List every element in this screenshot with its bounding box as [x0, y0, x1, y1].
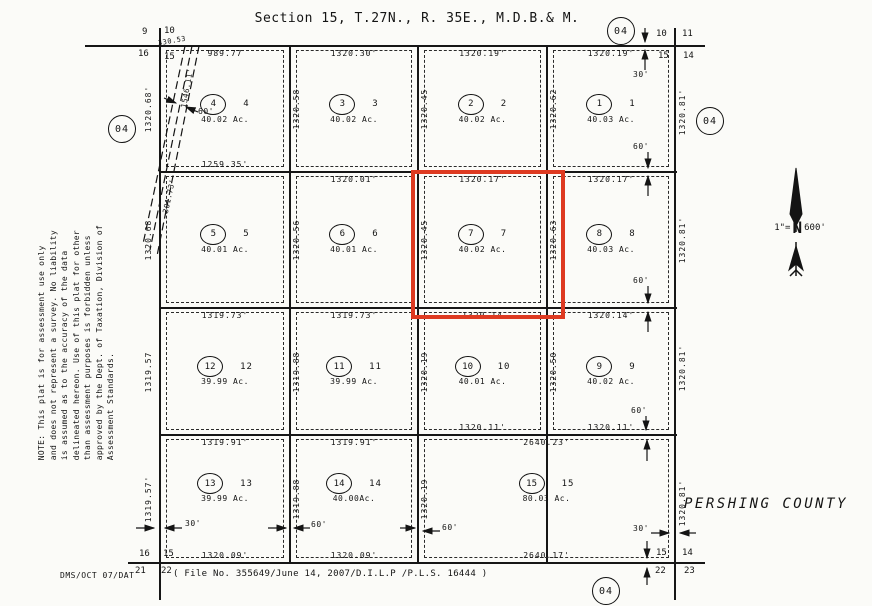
- measure-left: 1320.68: [144, 220, 153, 261]
- note-line: is assumed as to the accuracy of the dat…: [59, 182, 71, 460]
- parcel-acreage: 40.01 Ac.: [290, 245, 418, 254]
- parcel-number: 2: [501, 99, 507, 109]
- measure-top: 1319.91': [331, 438, 378, 447]
- measure-top: 1320.17': [459, 175, 506, 184]
- corner-br-sec14: 14: [682, 548, 693, 558]
- drafter-date-stamp: DMS/OCT 07/DAT: [60, 571, 134, 580]
- width-label-60-parcel-8: 60': [633, 276, 649, 285]
- corner-tl-sec15: 15: [164, 52, 175, 62]
- page-ref-circle-right[interactable]: 04: [696, 107, 724, 135]
- measure-top: 1319.91': [202, 438, 249, 447]
- corner-bl-sec22: 22: [161, 566, 172, 576]
- parcel-number: 9: [629, 362, 635, 372]
- width-label-60-parcel-13-14: 60': [311, 520, 327, 529]
- file-number-note: ( File No. 355649/June 14, 2007/D.I.L.P …: [173, 569, 488, 579]
- scale-value: 600': [804, 223, 826, 233]
- parcel-number-circled: 9: [586, 356, 612, 377]
- parcel-number-circled: 12: [197, 356, 223, 377]
- measure-right-parcel-1: 1320.81': [678, 89, 687, 136]
- measure-top: 1320.17': [588, 175, 635, 184]
- parcel-number-circled: 7: [458, 224, 484, 245]
- corner-tl-sec16: 16: [138, 49, 149, 59]
- parcel-number-circled: 2: [458, 94, 484, 115]
- corner-tr-sec11: 11: [682, 29, 693, 39]
- parcel-13[interactable]: 1319.91' 1319.57' 1313 39.99 Ac. 1320.09…: [160, 435, 290, 563]
- parcel-acreage: 40.00Ac.: [290, 494, 418, 503]
- parcel-2[interactable]: 1320.19' 1320.45 22 40.02 Ac.: [418, 46, 547, 172]
- note-line: than assessment purposes is forbidden un…: [82, 182, 94, 460]
- measure-bottom: 1320.09': [202, 551, 249, 560]
- corner-tl-sec10: 10: [164, 26, 175, 36]
- parcel-number-circled: 1: [586, 94, 612, 115]
- measure-top: 1320.01': [331, 175, 378, 184]
- parcel-number-circled: 10: [455, 356, 481, 377]
- parcel-14[interactable]: 1319.91' 1319.88 1414 40.00Ac. 1320.09': [290, 435, 418, 563]
- corner-bl-sec16: 16: [139, 549, 150, 559]
- measure-top: 1320.19': [588, 49, 635, 58]
- parcel-6[interactable]: 1320.01' 1320.56 66 40.01 Ac.: [290, 172, 418, 308]
- measure-right-parcel-9: 1320.81': [678, 345, 687, 392]
- measure-top: 1320.14': [588, 311, 635, 320]
- parcel-1[interactable]: 1320.19' 1320.62 11 40.03 Ac.: [547, 46, 675, 172]
- measure-top: 989.77: [208, 49, 243, 58]
- parcel-number-circled: 3: [329, 94, 355, 115]
- width-label-30-bottom-left: 30': [185, 519, 201, 528]
- parcel-8[interactable]: 1320.17' 1320.63 88 40.03 Ac.: [547, 172, 675, 308]
- parcel-7-selected[interactable]: 1320.17' 1320.45 77 40.02 Ac.: [418, 172, 547, 308]
- parcel-12[interactable]: 1319.73' 1319.57 1212 39.99 Ac.: [160, 308, 290, 435]
- note-line: approved by the Dept. of Taxation, Divis…: [93, 182, 105, 460]
- measure-bottom: 1320.11': [459, 423, 506, 432]
- measure-top: 1320.30': [331, 49, 378, 58]
- parcel-acreage: 40.03 Ac.: [547, 115, 675, 124]
- parcel-acreage: 39.99 Ac.: [160, 494, 290, 503]
- parcel-acreage: 39.99 Ac.: [290, 377, 418, 386]
- corner-br-sec23: 23: [684, 566, 695, 576]
- parcel-number-circled: 13: [197, 473, 223, 494]
- width-label-60-parcel-9: 60': [631, 406, 647, 415]
- measure-right-parcel-8: 1320.81': [678, 217, 687, 264]
- parcel-number-circled: 15: [519, 473, 545, 494]
- measure-bottom: 2640.17': [523, 551, 570, 560]
- parcel-number: 3: [372, 99, 378, 109]
- note-line: NOTE: This plat is for assessment use on…: [36, 182, 48, 460]
- parcel-number: 12: [240, 362, 253, 372]
- parcel-number-circled: 14: [326, 473, 352, 494]
- parcel-number: 15: [562, 479, 575, 489]
- parcel-3[interactable]: 1320.30' 1320.58 33 40.02 Ac.: [290, 46, 418, 172]
- note-line: and does not represent a survey. No liab…: [47, 182, 59, 460]
- parcel-number-circled: 8: [586, 224, 612, 245]
- corner-bl-sec15: 15: [163, 549, 174, 559]
- parcel-acreage: 40.03 Ac.: [547, 245, 675, 254]
- parcel-acreage: 40.02 Ac.: [418, 245, 547, 254]
- measure-bottom: 1259.35': [202, 160, 249, 169]
- corner-br-sec22: 22: [655, 566, 666, 576]
- parcel-10[interactable]: 1320.14 1320.19 1010 40.01 Ac. 1320.11': [418, 308, 547, 435]
- parcel-acreage: 40.02 Ac.: [290, 115, 418, 124]
- parcel-15[interactable]: 2640.23' 1320.19 1515 80.03 Ac. 2640.17': [418, 435, 675, 563]
- measure-left: 1319.57: [144, 351, 153, 392]
- county-label: PERSHING COUNTY: [684, 496, 848, 512]
- parcel-number: 5: [243, 229, 249, 239]
- width-label-60-road-parcel-4: 60': [198, 107, 214, 116]
- parcel-acreage: 40.01 Ac.: [418, 377, 547, 386]
- parcel-number: 13: [240, 479, 253, 489]
- parcel-number-circled: 11: [326, 356, 352, 377]
- map-scale: 1"= N 600': [760, 218, 840, 237]
- parcel-number: 7: [501, 229, 507, 239]
- measure-top: 1319.73': [331, 311, 378, 320]
- parcel-acreage: 40.02 Ac.: [547, 377, 675, 386]
- width-label-60-parcel-15: 60': [442, 523, 458, 532]
- measure-left: 1319.57': [144, 476, 153, 523]
- corner-br-sec15: 15: [656, 548, 667, 558]
- width-label-30-bottom-right: 30': [633, 524, 649, 533]
- parcel-number-circled: 5: [200, 224, 226, 245]
- parcel-9[interactable]: 1320.14' 1320.50 99 40.02 Ac. 1320.11': [547, 308, 675, 435]
- parcel-5[interactable]: 1320.68 55 40.01 Ac.: [160, 172, 290, 308]
- page-ref-circle-top[interactable]: 04: [607, 17, 635, 45]
- north-letter: N: [792, 218, 802, 237]
- parcel-number-circled: 6: [329, 224, 355, 245]
- page-ref-circle-left[interactable]: 04: [108, 115, 136, 143]
- parcel-number: 6: [372, 229, 378, 239]
- scale-prefix: 1"=: [774, 223, 790, 233]
- measure-left: 1320.68': [144, 86, 153, 133]
- parcel-number: 4: [243, 99, 249, 109]
- measure-bottom: 1320.11': [588, 423, 635, 432]
- parcel-4[interactable]: 989.77 1320.68' 44 40.02 Ac. 1259.35': [160, 46, 290, 172]
- map-title: Section 15, T.27N., R. 35E., M.D.B.& M.: [252, 11, 582, 26]
- parcel-number: 11: [369, 362, 382, 372]
- parcel-number: 8: [629, 229, 635, 239]
- note-line: Assessment Standards.: [105, 182, 117, 460]
- measure-top: 1320.14: [462, 311, 503, 320]
- width-label-30-top-right: 30': [633, 70, 649, 79]
- parcel-acreage: 40.02 Ac.: [418, 115, 547, 124]
- page-ref-circle-bottom[interactable]: 04: [592, 577, 620, 605]
- parcel-number: 1: [629, 99, 635, 109]
- width-label-60-parcel-1: 60': [633, 142, 649, 151]
- parcel-acreage: 80.03 Ac.: [418, 494, 675, 503]
- parcel-11[interactable]: 1319.73' 1319.88 1111 39.99 Ac.: [290, 308, 418, 435]
- parcel-number: 10: [498, 362, 511, 372]
- corner-tl-sec9: 9: [142, 27, 147, 37]
- note-line: delineated hereon. Use of this plat for …: [70, 182, 82, 460]
- assessment-note: NOTE: This plat is for assessment use on…: [36, 182, 117, 460]
- parcel-number: 14: [369, 479, 382, 489]
- parcel-acreage: 39.99 Ac.: [160, 377, 290, 386]
- corner-tr-sec10: 10: [656, 29, 667, 39]
- corner-bl-sec21: 21: [135, 566, 146, 576]
- measure-bottom: 1320.09': [331, 551, 378, 560]
- corner-tr-sec14: 14: [683, 51, 694, 61]
- measure-top: 2640.23': [523, 438, 570, 447]
- parcel-acreage: 40.01 Ac.: [160, 245, 290, 254]
- measure-top: 1320.19': [459, 49, 506, 58]
- corner-tr-sec15: 15: [658, 51, 669, 61]
- plat-map: Section 15, T.27N., R. 35E., M.D.B.& M. …: [0, 0, 872, 606]
- parcel-acreage: 40.02 Ac.: [160, 115, 290, 124]
- measure-top: 1319.73': [202, 311, 249, 320]
